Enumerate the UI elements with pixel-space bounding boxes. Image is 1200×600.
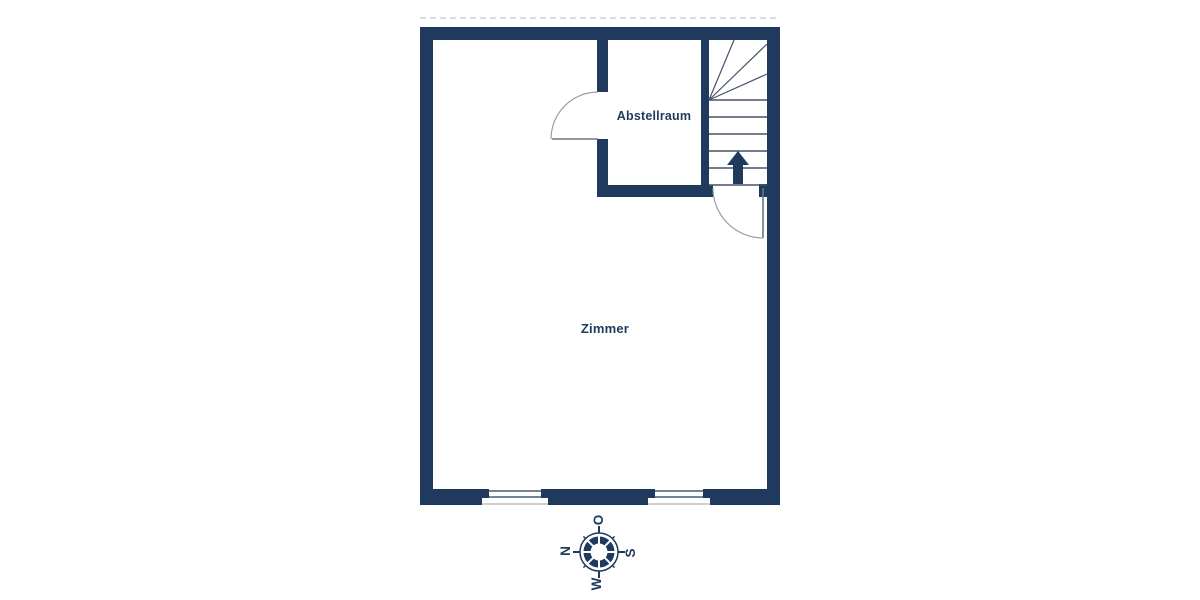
storage-left-wall-upper [597,40,608,92]
window-end-cap [482,489,489,498]
exterior-walls [420,27,780,505]
door-swing-arc [551,92,598,139]
storage-bottom-wall [597,185,713,197]
under-stair-door [713,188,763,238]
compass-label-west: W [587,574,607,594]
window-symbol [648,489,710,504]
wall-right [767,27,780,505]
wall-top [420,27,780,40]
wall-bottom-middle-segment [548,489,648,505]
compass-label-north: N [556,541,576,561]
window-symbol [482,489,548,504]
door-swing-arc [713,188,763,238]
window-end-cap [541,489,548,498]
compass-label-east: O [589,510,609,530]
compass-label-south: S [621,543,641,563]
room-label-zimmer: Zimmer [545,321,665,336]
staircase [709,40,767,185]
wall-bottom-right-segment [710,489,780,505]
compass-rose-icon [573,526,625,578]
storage-room-door [551,92,598,139]
window-end-cap [648,489,655,498]
wall-left [420,27,433,505]
floorplan-page: Abstellraum Zimmer N O S W [0,0,1200,600]
room-label-abstellraum: Abstellraum [594,109,714,123]
storage-left-wall-lower [597,139,608,185]
wall-bottom-left-segment [420,489,482,505]
winder-line [709,44,767,100]
window-end-cap [703,489,710,498]
compass-hub [594,547,605,558]
